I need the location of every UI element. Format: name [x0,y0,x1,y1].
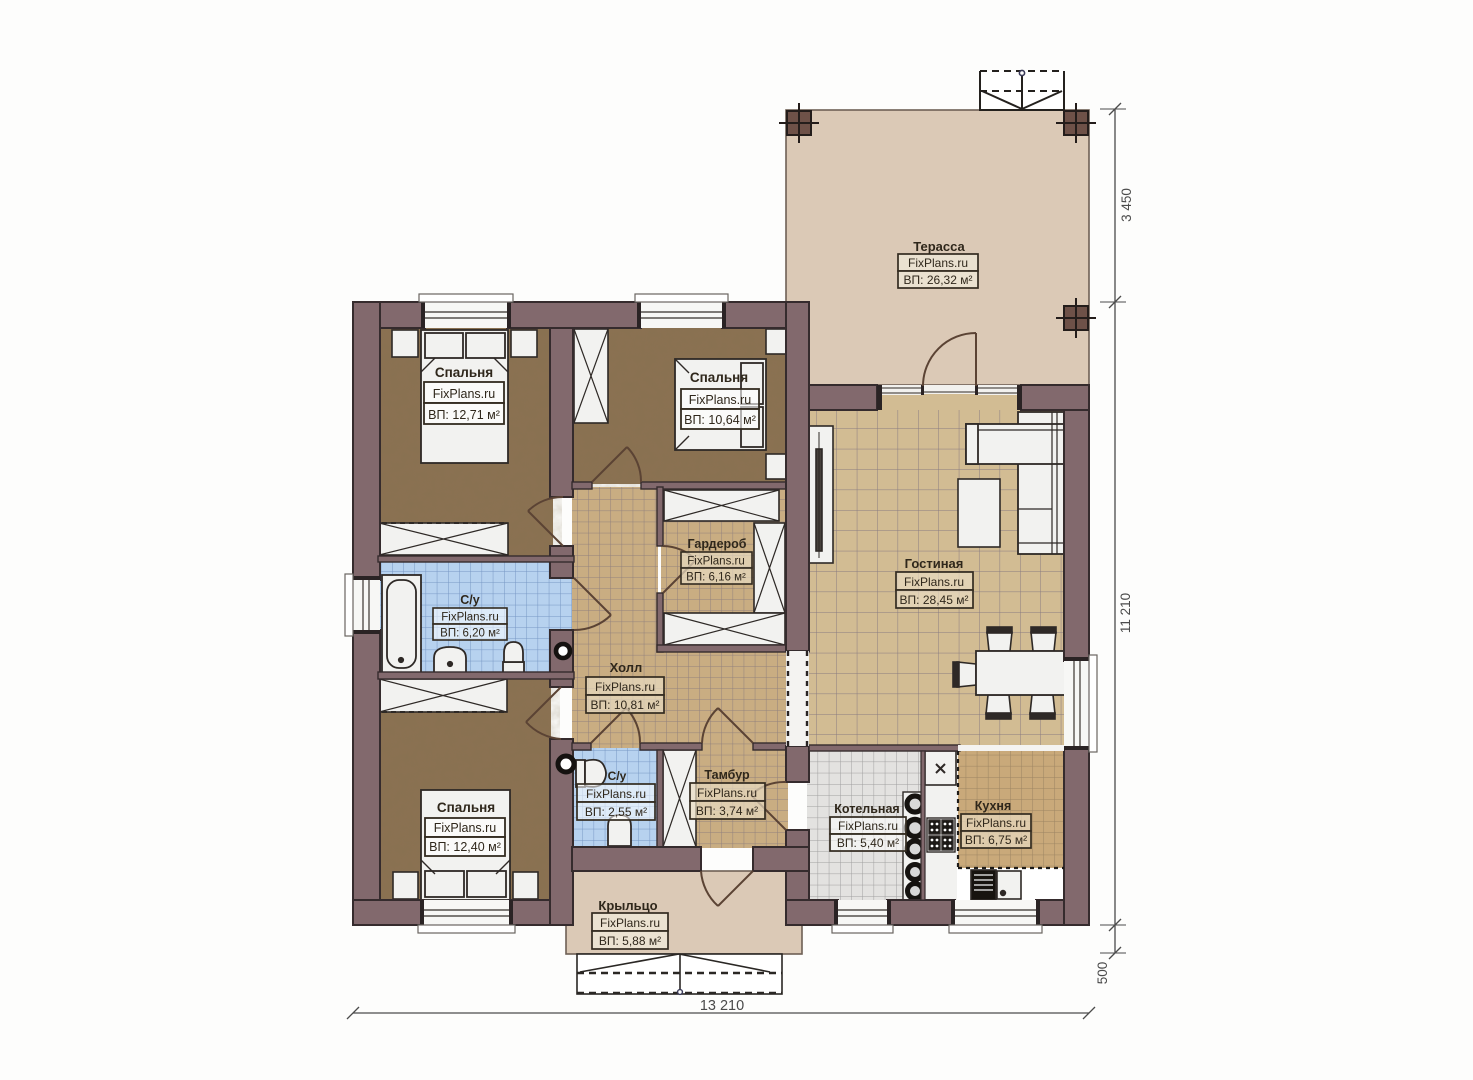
svg-text:Терасса: Терасса [913,239,965,254]
svg-text:Гостиная: Гостиная [905,556,964,571]
svg-text:ВП: 10,64 м²: ВП: 10,64 м² [684,413,756,427]
svg-text:FixPlans.ru: FixPlans.ru [600,916,660,930]
svg-text:FixPlans.ru: FixPlans.ru [966,816,1026,830]
svg-text:С/у: С/у [608,769,627,783]
svg-text:Спальня: Спальня [435,365,493,380]
svg-text:FixPlans.ru: FixPlans.ru [904,575,964,589]
svg-text:FixPlans.ru: FixPlans.ru [697,786,757,800]
svg-text:Котельная: Котельная [834,802,899,816]
svg-text:С/у: С/у [460,593,480,607]
svg-text:ВП: 5,88 м²: ВП: 5,88 м² [599,934,661,948]
svg-text:FixPlans.ru: FixPlans.ru [433,387,496,401]
svg-text:FixPlans.ru: FixPlans.ru [908,256,968,270]
svg-text:ВП: 28,45 м²: ВП: 28,45 м² [900,593,969,607]
svg-text:ВП: 5,40 м²: ВП: 5,40 м² [837,836,899,850]
svg-text:FixPlans.ru: FixPlans.ru [586,787,646,801]
svg-text:ВП: 26,32 м²: ВП: 26,32 м² [904,273,973,287]
svg-text:Гардероб: Гардероб [687,537,746,551]
svg-text:FixPlans.ru: FixPlans.ru [838,819,898,833]
svg-text:FixPlans.ru: FixPlans.ru [441,612,499,624]
svg-text:11 210: 11 210 [1118,593,1133,633]
svg-text:3 450: 3 450 [1119,188,1134,222]
svg-text:ВП: 6,20 м²: ВП: 6,20 м² [440,628,500,640]
svg-text:13 210: 13 210 [700,998,744,1014]
svg-text:FixPlans.ru: FixPlans.ru [689,393,752,407]
svg-text:ВП: 10,81 м²: ВП: 10,81 м² [591,698,660,712]
svg-text:Крыльцо: Крыльцо [598,898,657,913]
svg-text:FixPlans.ru: FixPlans.ru [687,556,745,568]
svg-text:FixPlans.ru: FixPlans.ru [595,680,655,694]
svg-text:ВП: 6,75 м²: ВП: 6,75 м² [965,833,1027,847]
svg-text:FixPlans.ru: FixPlans.ru [434,821,497,835]
svg-text:Холл: Холл [610,660,643,675]
svg-text:500: 500 [1095,962,1110,985]
svg-text:Спальня: Спальня [690,370,748,385]
svg-text:Тамбур: Тамбур [704,768,750,782]
svg-text:Кухня: Кухня [975,799,1012,813]
svg-text:ВП: 6,16 м²: ВП: 6,16 м² [686,572,746,584]
svg-text:ВП: 3,74 м²: ВП: 3,74 м² [696,804,758,818]
svg-text:Спальня: Спальня [437,800,495,815]
svg-text:ВП: 2,55 м²: ВП: 2,55 м² [585,805,647,819]
svg-text:ВП: 12,71 м²: ВП: 12,71 м² [428,408,500,422]
svg-text:ВП: 12,40 м²: ВП: 12,40 м² [429,840,501,854]
